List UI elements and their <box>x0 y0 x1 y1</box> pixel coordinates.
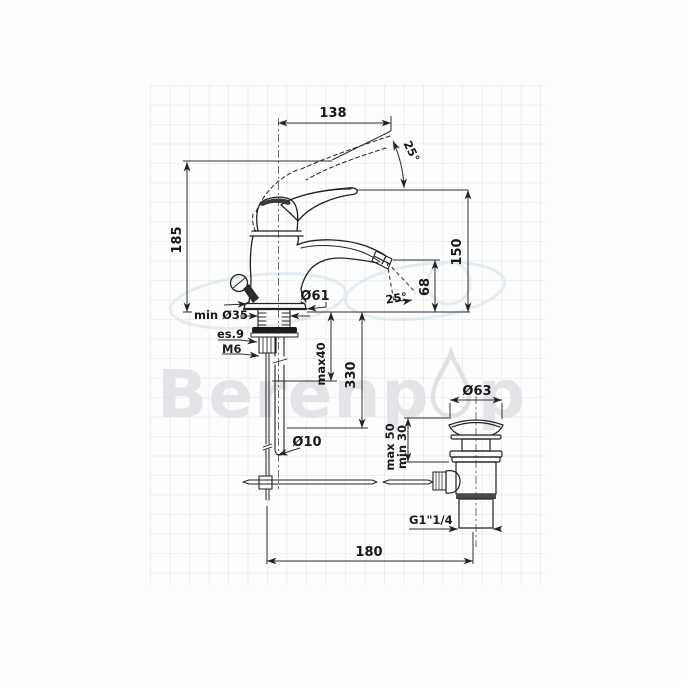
handle-raised-dashed <box>253 136 390 232</box>
dim-angle-25-handle: 25° <box>401 138 423 164</box>
dim-thread-g114: G1"1/4 <box>409 513 453 527</box>
dim-dist-180: 180 <box>355 545 382 560</box>
spout-aerator <box>372 251 392 269</box>
body-collar <box>250 231 303 236</box>
drain-knurl-lines <box>436 472 442 490</box>
drain-compression-band <box>456 494 496 499</box>
drain-assembly-outline <box>433 420 503 528</box>
dim-dia-10: Ø10 <box>292 435 321 450</box>
linkage-bar-right <box>383 480 433 484</box>
dim-dia-63: Ø63 <box>462 384 491 399</box>
dim-max-40: max40 <box>314 342 328 385</box>
dim-dia-61: Ø61 <box>300 289 329 304</box>
pull-knob-stem <box>243 284 259 303</box>
technical-drawing-page: Berenp p <box>0 0 685 685</box>
drain-ball-housing <box>446 471 460 494</box>
dim-angle-25-spout: 25° <box>385 289 409 306</box>
watermark-swoosh <box>168 254 508 336</box>
pull-rod-break <box>263 444 272 450</box>
dim-thread-m6: M6 <box>222 342 241 356</box>
dim-hex-es9: es.9 <box>217 327 244 341</box>
pull-knob-line <box>233 278 245 288</box>
drain-knurled-nut <box>433 472 446 490</box>
spout-inner-line <box>301 245 380 262</box>
watermark-text-left: Berenp <box>157 356 430 433</box>
dim-len-330: 330 <box>344 361 359 388</box>
hex-nut-flats <box>263 337 271 353</box>
dim-min-dia-35: min Ø35 <box>194 308 248 322</box>
hex-nut <box>259 337 276 353</box>
dim-width-138: 138 <box>319 106 346 121</box>
gasket <box>252 327 297 333</box>
lever-handle <box>281 188 357 221</box>
faucet-dimension-drawing: Berenp p <box>0 0 685 685</box>
dim-height-68: 68 <box>418 278 433 296</box>
dim-height-185: 185 <box>170 226 185 253</box>
linkage-bar-left <box>243 480 377 484</box>
watermark: Berenp p <box>157 254 526 433</box>
horseshoe-washer <box>251 333 298 337</box>
dim-height-150: 150 <box>450 238 465 265</box>
dim-min-30: min 30 <box>395 425 409 469</box>
linkage-clamp-block <box>259 476 272 489</box>
